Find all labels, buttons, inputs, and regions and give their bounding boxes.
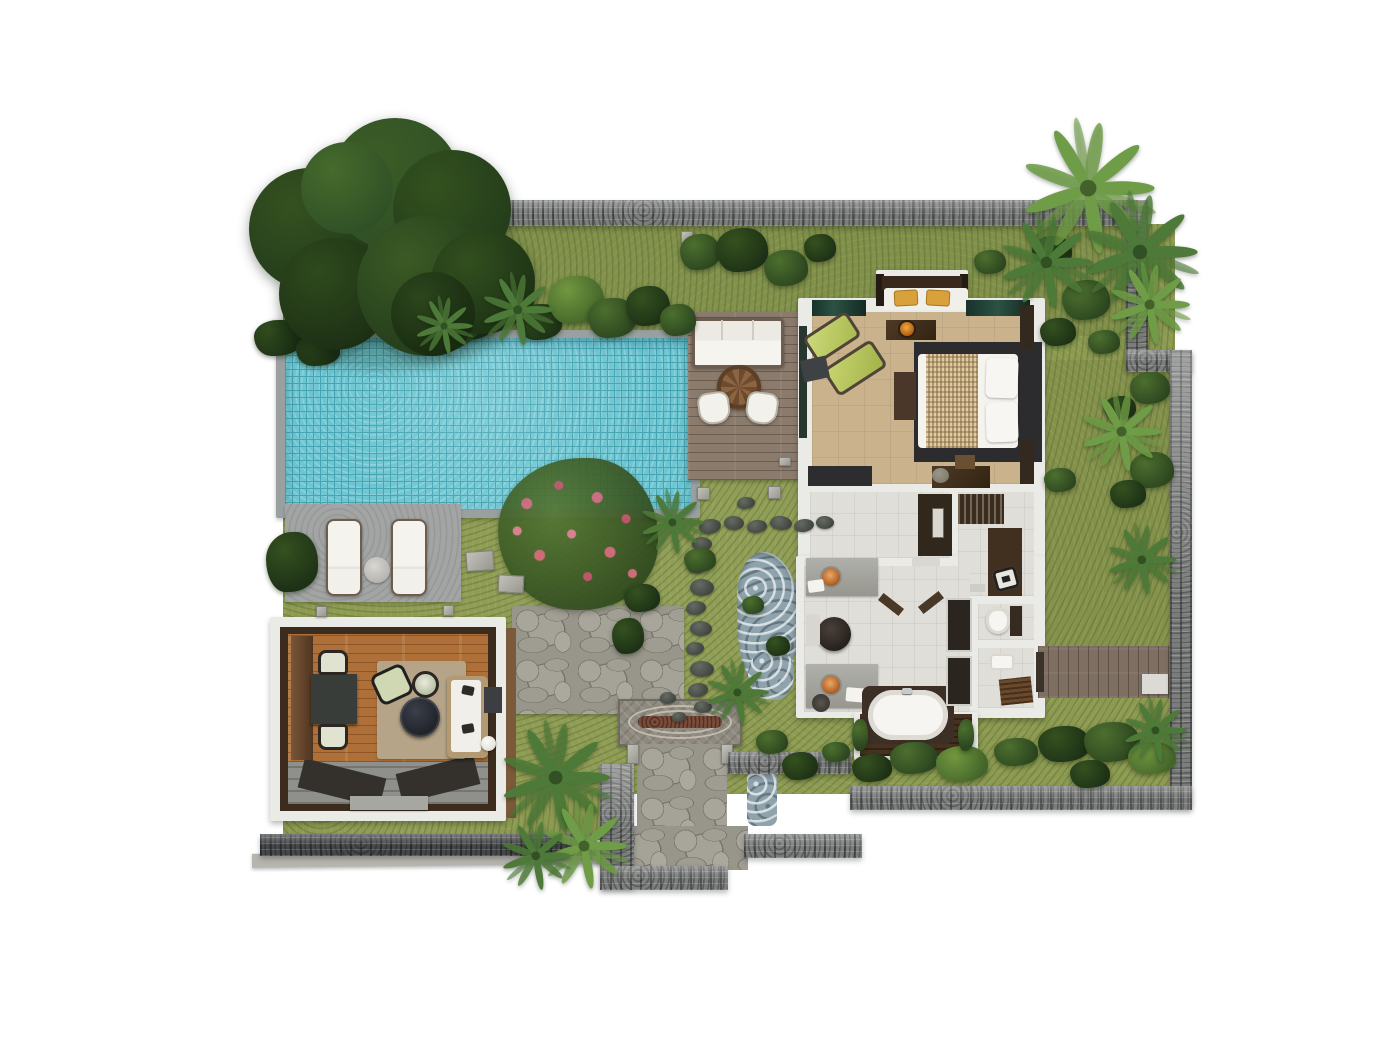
sofa-cushion-split	[721, 320, 723, 340]
rock-stream-lower	[748, 648, 794, 700]
toilet	[986, 608, 1010, 634]
tree-canopy-lobe	[301, 142, 393, 234]
perimeter-wall-east-upper	[1126, 200, 1148, 368]
entrance-wall-south	[600, 866, 728, 890]
teak-shower-mat	[999, 676, 1034, 705]
dining-table	[311, 674, 357, 724]
linen-closet	[946, 598, 972, 652]
pavilion-side-table	[484, 687, 502, 713]
pavilion-entry-step	[350, 796, 428, 810]
dining-chair	[318, 724, 348, 750]
bed-bench	[894, 372, 916, 420]
toilet-tank	[1010, 606, 1022, 636]
tv-inset	[932, 508, 944, 538]
large-shade-tree	[245, 112, 515, 360]
copper-basin	[820, 674, 842, 696]
flagstone-patio	[512, 606, 684, 714]
ottoman	[817, 617, 851, 651]
towel	[807, 579, 825, 593]
aquatic-plant	[742, 596, 764, 614]
desk-stool	[932, 468, 949, 483]
outdoor-sofa	[692, 318, 784, 368]
entrance-wall-east-upper	[728, 752, 852, 774]
entrance-wall-east-lower	[744, 834, 862, 858]
walkway-step	[1142, 674, 1168, 694]
entrance-water-channel	[747, 770, 777, 826]
pool-deck	[285, 504, 461, 602]
bed-pillow	[985, 357, 1018, 398]
round-chair	[412, 671, 439, 698]
pavilion-shelf-unit	[291, 636, 313, 760]
decor-bowl	[900, 322, 914, 336]
floor-lamp	[481, 736, 496, 751]
entrance-path	[637, 744, 727, 832]
perimeter-wall-south-east	[850, 786, 1192, 810]
sofa-cushion-split	[752, 320, 754, 340]
perimeter-wall-east-lower	[1170, 350, 1192, 806]
east-cabinet	[1020, 440, 1034, 484]
side-stool	[955, 455, 975, 469]
perimeter-wall-north	[432, 200, 1138, 226]
flowering-rose-bush	[498, 458, 658, 610]
sun-lounger	[391, 519, 427, 596]
pavilion-right-fascia	[506, 628, 516, 818]
pavilion-post-pad	[443, 605, 454, 616]
sun-lounger	[326, 519, 362, 596]
daybed-pillow	[926, 289, 951, 306]
deck-side-table	[364, 557, 390, 583]
perimeter-wall-south-west	[260, 834, 596, 856]
dining-chair	[318, 650, 348, 675]
shower-sink	[990, 654, 1014, 670]
gate-post	[627, 744, 639, 764]
bed-runner	[926, 354, 978, 448]
aquatic-plant	[766, 636, 790, 656]
tree-canopy-lobe	[391, 272, 475, 356]
bed-pillow	[985, 401, 1018, 442]
walkway-door	[1036, 652, 1044, 692]
bathtub	[868, 690, 948, 740]
carved-center-band	[638, 716, 722, 728]
bath-stool	[806, 614, 820, 646]
east-cabinet	[1020, 305, 1034, 349]
floor-drain	[812, 694, 830, 712]
tub-faucet	[902, 688, 912, 694]
daybed-pillow	[894, 289, 919, 306]
villa-floor-plan	[0, 0, 1400, 1050]
pavilion-post-pad	[316, 606, 327, 617]
linen-closet	[946, 656, 972, 706]
closet-hanging	[958, 494, 1004, 524]
bedroom-cabinet-south	[808, 466, 872, 486]
coffee-table	[400, 697, 440, 737]
